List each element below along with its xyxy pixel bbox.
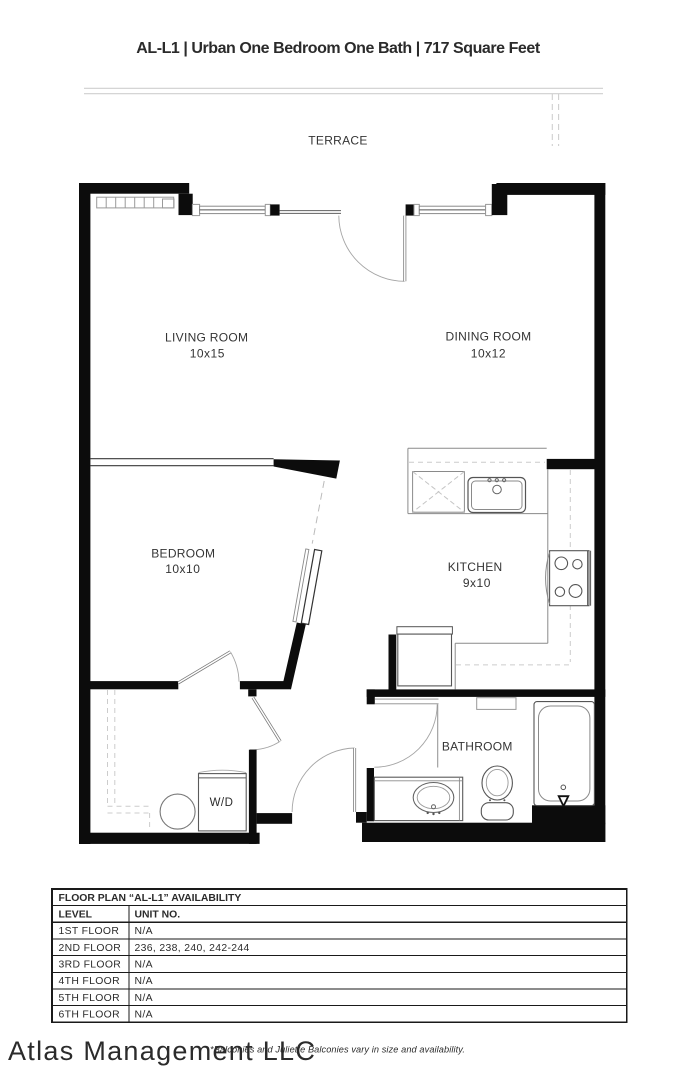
svg-text:AL-L1 | Urban One Bedroom One: AL-L1 | Urban One Bedroom One Bath | 717… — [136, 40, 541, 57]
svg-text:BATHROOM: BATHROOM — [442, 739, 513, 753]
svg-text:2ND FLOOR: 2ND FLOOR — [59, 943, 122, 954]
svg-text:9x10: 9x10 — [463, 576, 491, 590]
svg-text:6TH FLOOR: 6TH FLOOR — [59, 1010, 121, 1021]
svg-text:N/A: N/A — [135, 993, 153, 1004]
svg-text:UNIT NO.: UNIT NO. — [135, 910, 181, 921]
svg-text:TERRACE: TERRACE — [308, 134, 367, 148]
svg-text:FLOOR PLAN “AL-L1” AVAILABILIT: FLOOR PLAN “AL-L1” AVAILABILITY — [59, 893, 242, 904]
svg-text:LEVEL: LEVEL — [59, 910, 93, 921]
svg-text:LIVING ROOM: LIVING ROOM — [165, 331, 248, 345]
svg-text:5TH FLOOR: 5TH FLOOR — [59, 993, 121, 1004]
svg-text:10x12: 10x12 — [471, 347, 506, 361]
svg-text:3RD FLOOR: 3RD FLOOR — [59, 960, 122, 971]
svg-text:10x10: 10x10 — [165, 562, 200, 576]
svg-text:BEDROOM: BEDROOM — [151, 546, 215, 560]
svg-text:1ST FLOOR: 1ST FLOOR — [59, 926, 120, 937]
svg-text:N/A: N/A — [135, 976, 153, 987]
svg-text:DINING ROOM: DINING ROOM — [446, 330, 532, 344]
svg-text:N/A: N/A — [135, 960, 153, 971]
svg-text:10x15: 10x15 — [190, 347, 225, 361]
svg-text:N/A: N/A — [135, 926, 153, 937]
svg-text:KITCHEN: KITCHEN — [448, 560, 503, 574]
svg-text:W/D: W/D — [210, 797, 234, 809]
svg-text:4TH FLOOR: 4TH FLOOR — [59, 976, 121, 987]
svg-text:N/A: N/A — [135, 1010, 153, 1021]
svg-text:*Balconies and Juliette Balcon: *Balconies and Juliette Balconies vary i… — [210, 1045, 465, 1055]
svg-text:236, 238, 240, 242-244: 236, 238, 240, 242-244 — [135, 943, 250, 954]
